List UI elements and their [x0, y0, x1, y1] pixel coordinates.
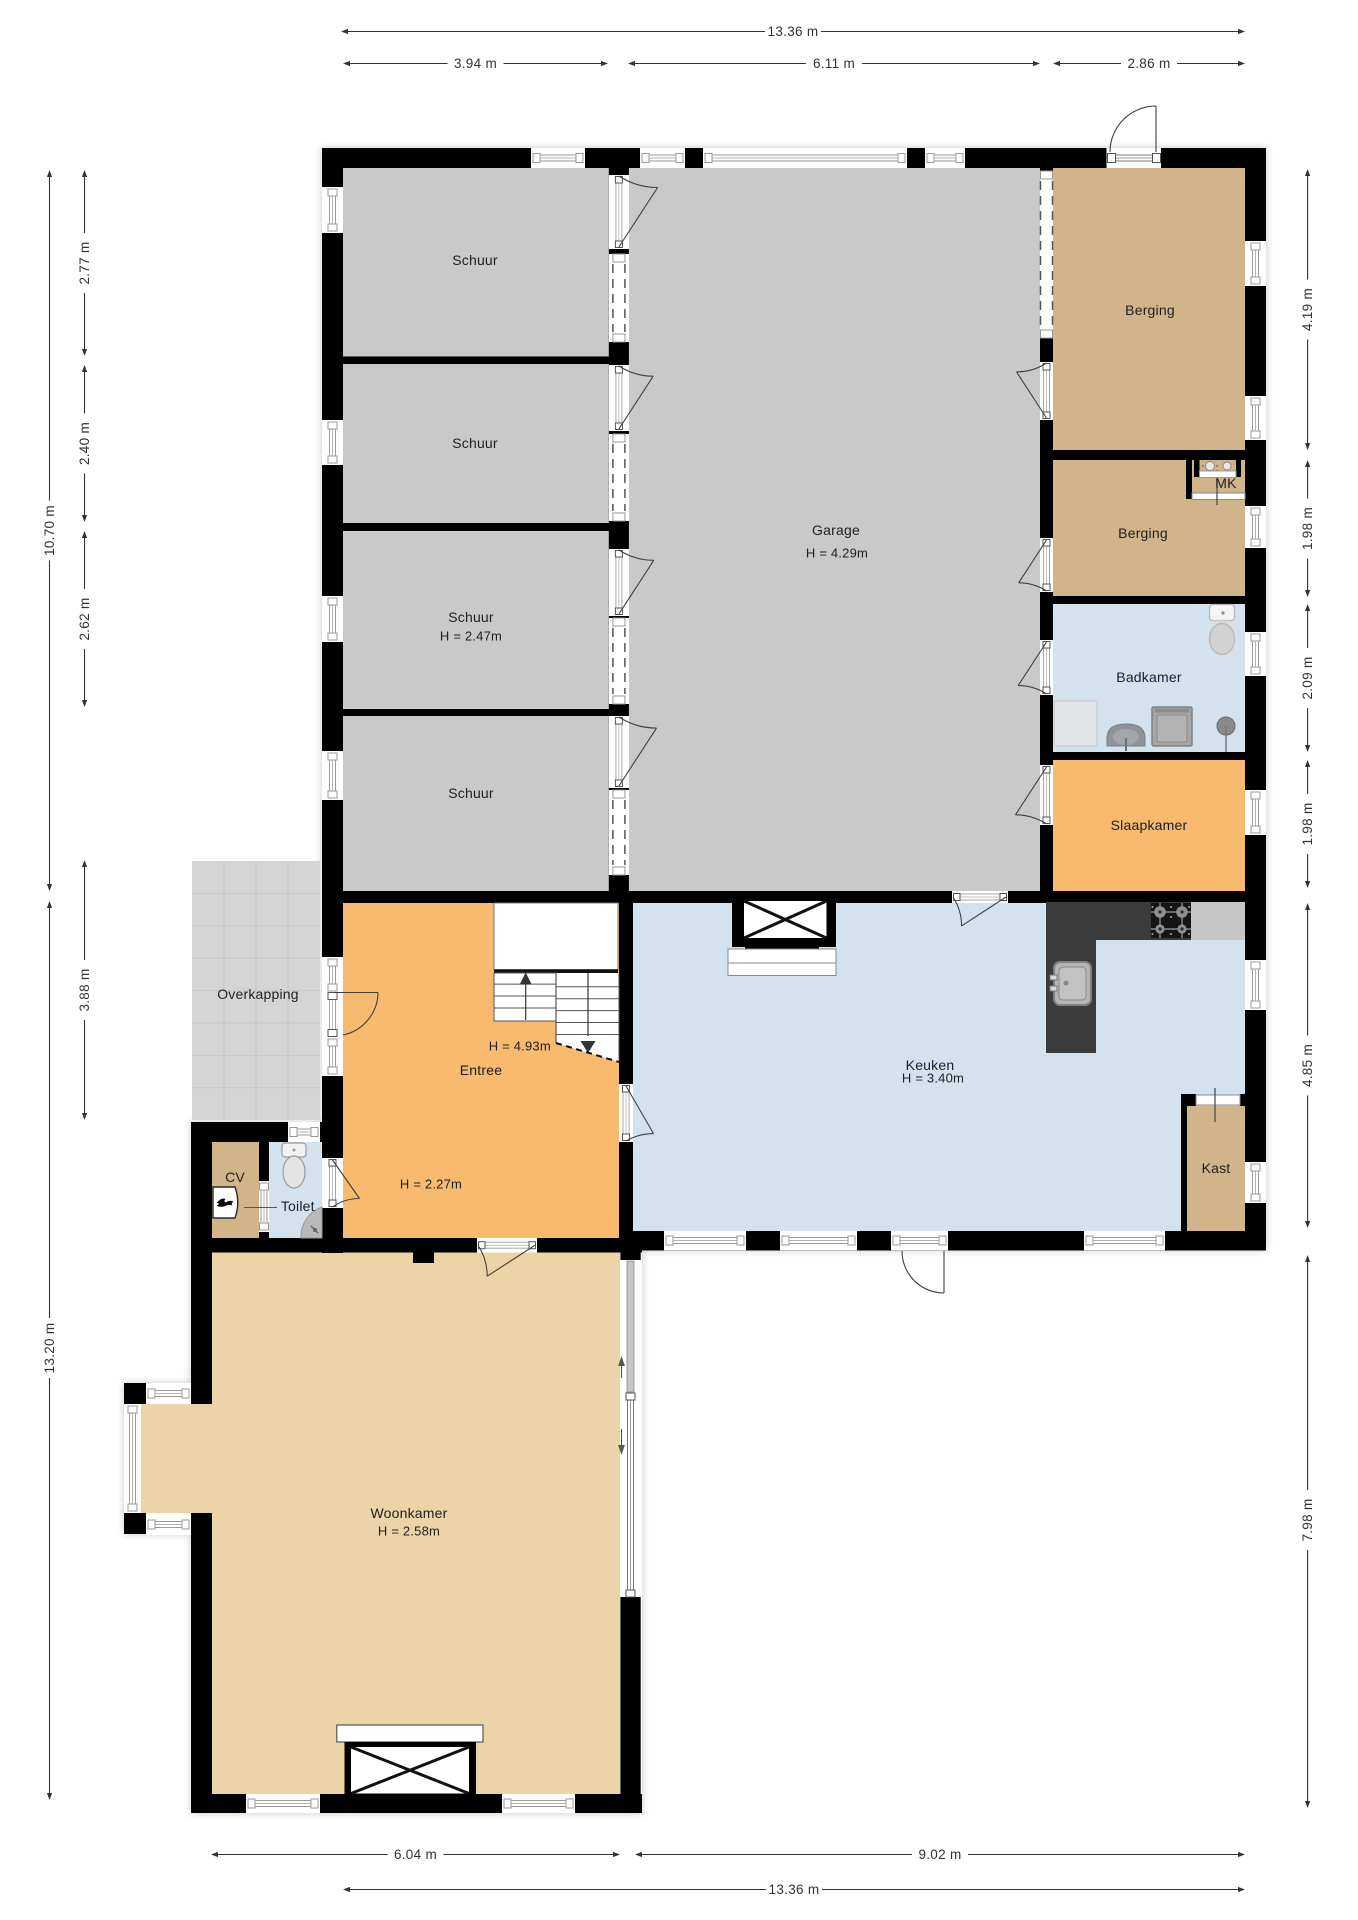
svg-text:H = 2.27m: H = 2.27m — [400, 1177, 462, 1192]
svg-text:Badkamer: Badkamer — [1116, 669, 1182, 685]
svg-text:2.40 m: 2.40 m — [77, 422, 92, 465]
svg-text:Garage: Garage — [812, 522, 860, 538]
svg-text:Woonkamer: Woonkamer — [370, 1505, 447, 1521]
svg-text:2.62 m: 2.62 m — [77, 597, 92, 640]
svg-text:H = 3.40m: H = 3.40m — [902, 1071, 964, 1086]
svg-text:H = 2.58m: H = 2.58m — [378, 1524, 440, 1539]
svg-text:7.98 m: 7.98 m — [1300, 1498, 1315, 1541]
svg-text:2.77 m: 2.77 m — [77, 241, 92, 284]
svg-text:Schuur: Schuur — [448, 609, 494, 625]
svg-text:Slaapkamer: Slaapkamer — [1111, 817, 1188, 833]
svg-text:2.86 m: 2.86 m — [1127, 56, 1170, 71]
svg-text:Schuur: Schuur — [452, 435, 498, 451]
svg-text:Entree: Entree — [460, 1062, 502, 1078]
svg-text:H = 2.47m: H = 2.47m — [440, 629, 502, 644]
svg-text:Schuur: Schuur — [448, 785, 494, 801]
svg-text:6.04 m: 6.04 m — [394, 1847, 437, 1862]
svg-text:10.70 m: 10.70 m — [42, 505, 57, 556]
svg-text:13.20 m: 13.20 m — [42, 1323, 57, 1374]
svg-text:1.98 m: 1.98 m — [1300, 802, 1315, 845]
svg-text:CV: CV — [225, 1169, 245, 1185]
svg-text:Overkapping: Overkapping — [217, 986, 299, 1002]
svg-text:9.02 m: 9.02 m — [918, 1847, 961, 1862]
svg-text:H = 4.93m: H = 4.93m — [489, 1039, 551, 1054]
svg-text:MK: MK — [1215, 475, 1237, 491]
svg-text:H = 4.29m: H = 4.29m — [806, 546, 868, 561]
svg-text:13.36 m: 13.36 m — [769, 1882, 820, 1897]
svg-text:3.94 m: 3.94 m — [454, 56, 497, 71]
svg-text:6.11 m: 6.11 m — [813, 56, 855, 71]
svg-text:Berging: Berging — [1125, 302, 1175, 318]
svg-text:4.85 m: 4.85 m — [1300, 1044, 1315, 1087]
svg-text:Schuur: Schuur — [452, 252, 498, 268]
svg-text:Kast: Kast — [1202, 1160, 1231, 1176]
svg-text:2.09 m: 2.09 m — [1300, 656, 1315, 699]
svg-text:Berging: Berging — [1118, 525, 1168, 541]
svg-text:1.98 m: 1.98 m — [1300, 507, 1315, 550]
svg-text:Toilet: Toilet — [281, 1198, 315, 1214]
svg-text:13.36 m: 13.36 m — [768, 24, 819, 39]
svg-text:3.88 m: 3.88 m — [77, 968, 92, 1011]
svg-text:4.19 m: 4.19 m — [1300, 288, 1315, 331]
